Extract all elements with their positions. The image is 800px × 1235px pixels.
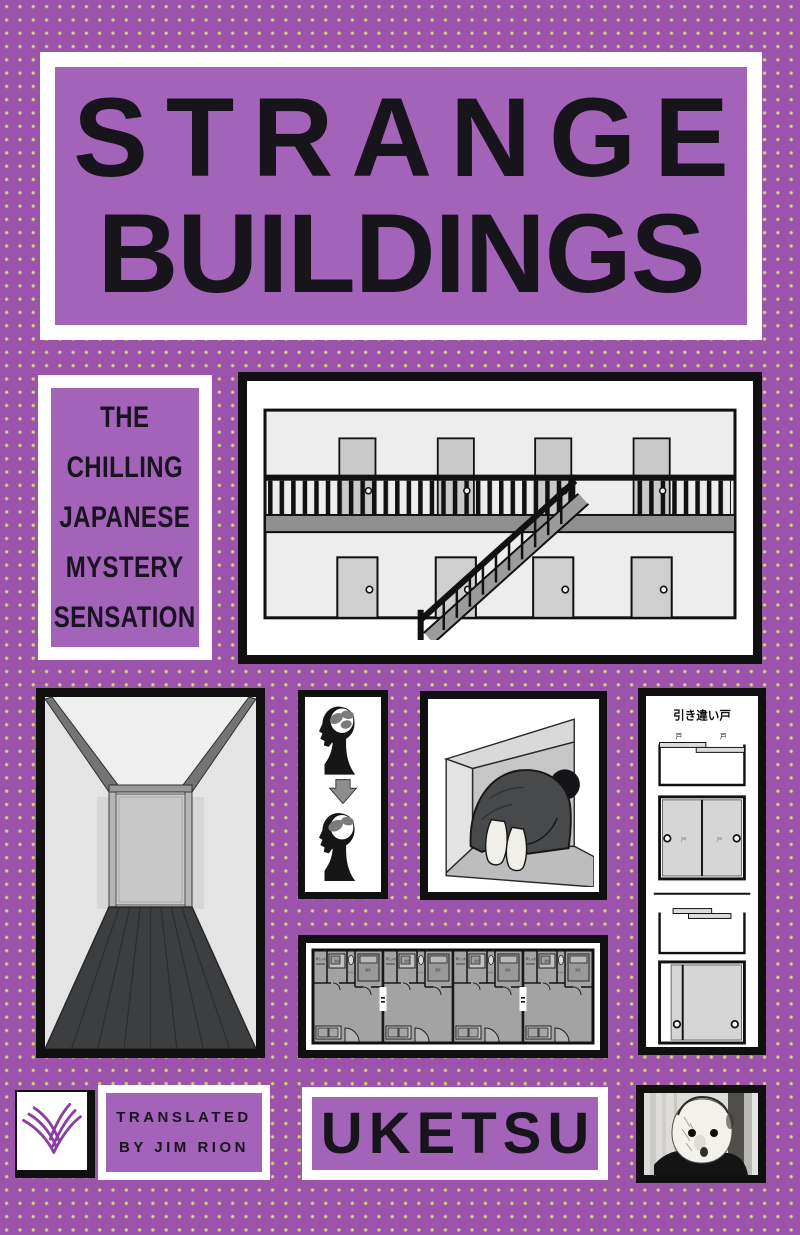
tagline-block-inner: THE CHILLING JAPANESE MYSTERY SENSATION (51, 388, 199, 647)
head-before (319, 707, 355, 775)
head-brain-diagram-icon (309, 701, 377, 888)
top-view-open (660, 909, 745, 953)
sliding-door-diagram-icon: 引き違い戸 戸 戸 戸 戸 (648, 698, 756, 1045)
publisher-logo (15, 1090, 95, 1178)
translator-block: TRANSLATED BY JIM RION (98, 1085, 270, 1180)
floor-plan-panel: 押し入れ 浴室 トイレ 寝室 (298, 935, 608, 1058)
book-cover: STRANGE BUILDINGS THE CHILLING JAPANESE … (0, 0, 800, 1235)
person-in-crawlspace-icon (433, 704, 594, 887)
masked-face-photo-icon (644, 1093, 758, 1175)
perspective-corridor-icon (45, 697, 256, 1049)
svg-text:戸: 戸 (675, 732, 682, 740)
sliding-door-diagram-panel: 引き違い戸 戸 戸 戸 戸 (638, 688, 766, 1055)
balcony-railing (265, 475, 735, 517)
crawlspace-illustration-panel (420, 691, 607, 900)
title-block-inner: STRANGE BUILDINGS (55, 67, 747, 325)
tagline-line-2: CHILLING (67, 443, 184, 493)
svg-text:戸: 戸 (681, 836, 687, 843)
tagline-block: THE CHILLING JAPANESE MYSTERY SENSATION (38, 375, 212, 660)
front-view-closed: 戸 戸 (660, 797, 745, 879)
author-photo-panel (636, 1085, 766, 1183)
hidden-gap-marker-2 (520, 987, 527, 1011)
translator-line-1: TRANSLATED (116, 1103, 252, 1132)
building-cross-section-icon (262, 396, 738, 640)
title-line-2: BUILDINGS (98, 196, 705, 312)
tagline-line-4: MYSTERY (66, 543, 184, 593)
mask-eye-right (710, 1129, 718, 1137)
tagline-line-1: THE (100, 393, 149, 443)
front-view-open (660, 962, 745, 1043)
building-illustration-panel (238, 372, 762, 664)
arrow-down-icon (330, 780, 357, 804)
head-after (319, 813, 355, 881)
open-book-logo-icon (20, 1095, 84, 1167)
sock-right (506, 827, 526, 870)
translator-line-2: BY JIM RION (119, 1133, 249, 1162)
tagline-line-5: SENSATION (54, 593, 196, 643)
hidden-gap-marker-1 (380, 987, 387, 1011)
svg-text:戸: 戸 (720, 732, 727, 740)
sock-left (486, 820, 508, 865)
author-block: UKETSU (302, 1087, 608, 1180)
hallway-illustration-panel (36, 688, 265, 1058)
author-block-inner: UKETSU (312, 1097, 598, 1170)
author-name: UKETSU (321, 1100, 595, 1167)
translator-block-inner: TRANSLATED BY JIM RION (106, 1093, 262, 1172)
title-block: STRANGE BUILDINGS (40, 52, 762, 340)
svg-text:戸: 戸 (716, 836, 722, 843)
mask-mouth (700, 1147, 708, 1157)
sliding-door-title: 引き違い戸 (673, 709, 731, 723)
tagline-line-3: JAPANESE (60, 493, 191, 543)
title-line-1: STRANGE (73, 80, 747, 196)
top-view-closed: 戸 戸 (660, 732, 745, 785)
head-diagram-panel (298, 690, 388, 899)
mask-eye-left (688, 1129, 696, 1137)
apartment-floor-plan-icon: 押し入れ 浴室 トイレ 寝室 (310, 947, 596, 1046)
end-door (116, 794, 185, 905)
